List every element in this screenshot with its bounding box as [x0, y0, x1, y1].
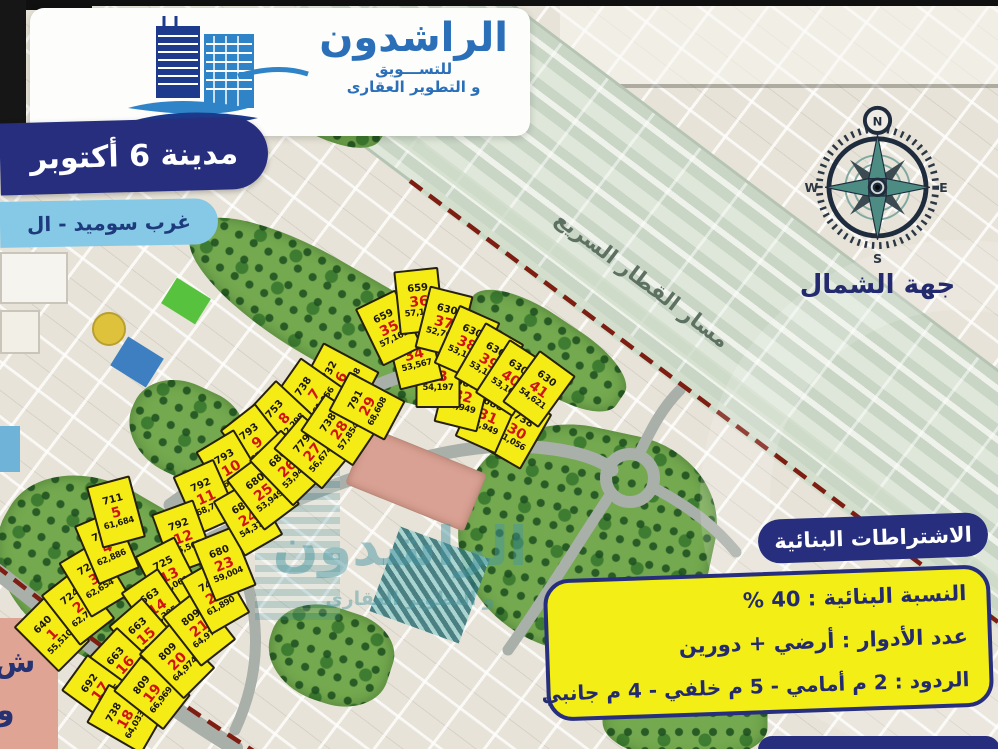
company-logo-card: الراشدون للتســـويق و التطوير العقارى	[30, 8, 530, 136]
compass-s-letter: S	[873, 251, 882, 266]
company-name: الراشدون	[319, 18, 508, 58]
bottom-partial-banner	[758, 736, 998, 749]
plot-area: 54,197	[422, 384, 453, 393]
district-banner: غرب سوميد - ال	[0, 198, 218, 248]
plot-area: 62,886	[96, 548, 128, 568]
requirements-box: النسبة البنائية : 40 % عدد الأدوار : أرض…	[543, 564, 995, 722]
requirement-setbacks: الردود : 2 م أمامي - 5 م خلفي - 4 م جانب…	[570, 667, 970, 705]
requirements-title-banner: الاشتراطات البنائية	[757, 512, 988, 564]
photo-black-edge	[0, 0, 998, 6]
company-logo-text: الراشدون للتســـويق و التطوير العقارى	[319, 18, 508, 96]
compass-w-letter: W	[805, 180, 819, 195]
company-tagline-2: و التطوير العقارى	[319, 78, 508, 96]
plot-area: 61,684	[103, 516, 135, 532]
scanned-masterplan-photo: مسار القطار السريع ش و	[0, 0, 998, 749]
compass-rose: N W E S	[795, 95, 960, 270]
company-logo-buildings-icon	[118, 16, 318, 128]
north-direction-caption: جهة الشمال	[795, 270, 960, 300]
compass-e-letter: E	[939, 180, 948, 195]
requirement-built-ratio: النسبة البنائية : 40 %	[567, 581, 967, 619]
compass-rose-icon: N W E S	[795, 95, 960, 270]
requirement-floors: عدد الأدوار : أرضي + دورين	[569, 624, 969, 662]
compass-n-letter: N	[873, 114, 883, 128]
company-tagline-1: للتســـويق	[319, 60, 508, 78]
photo-black-edge	[0, 0, 26, 140]
city-banner: مدينة 6 أكتوبر	[0, 117, 269, 196]
